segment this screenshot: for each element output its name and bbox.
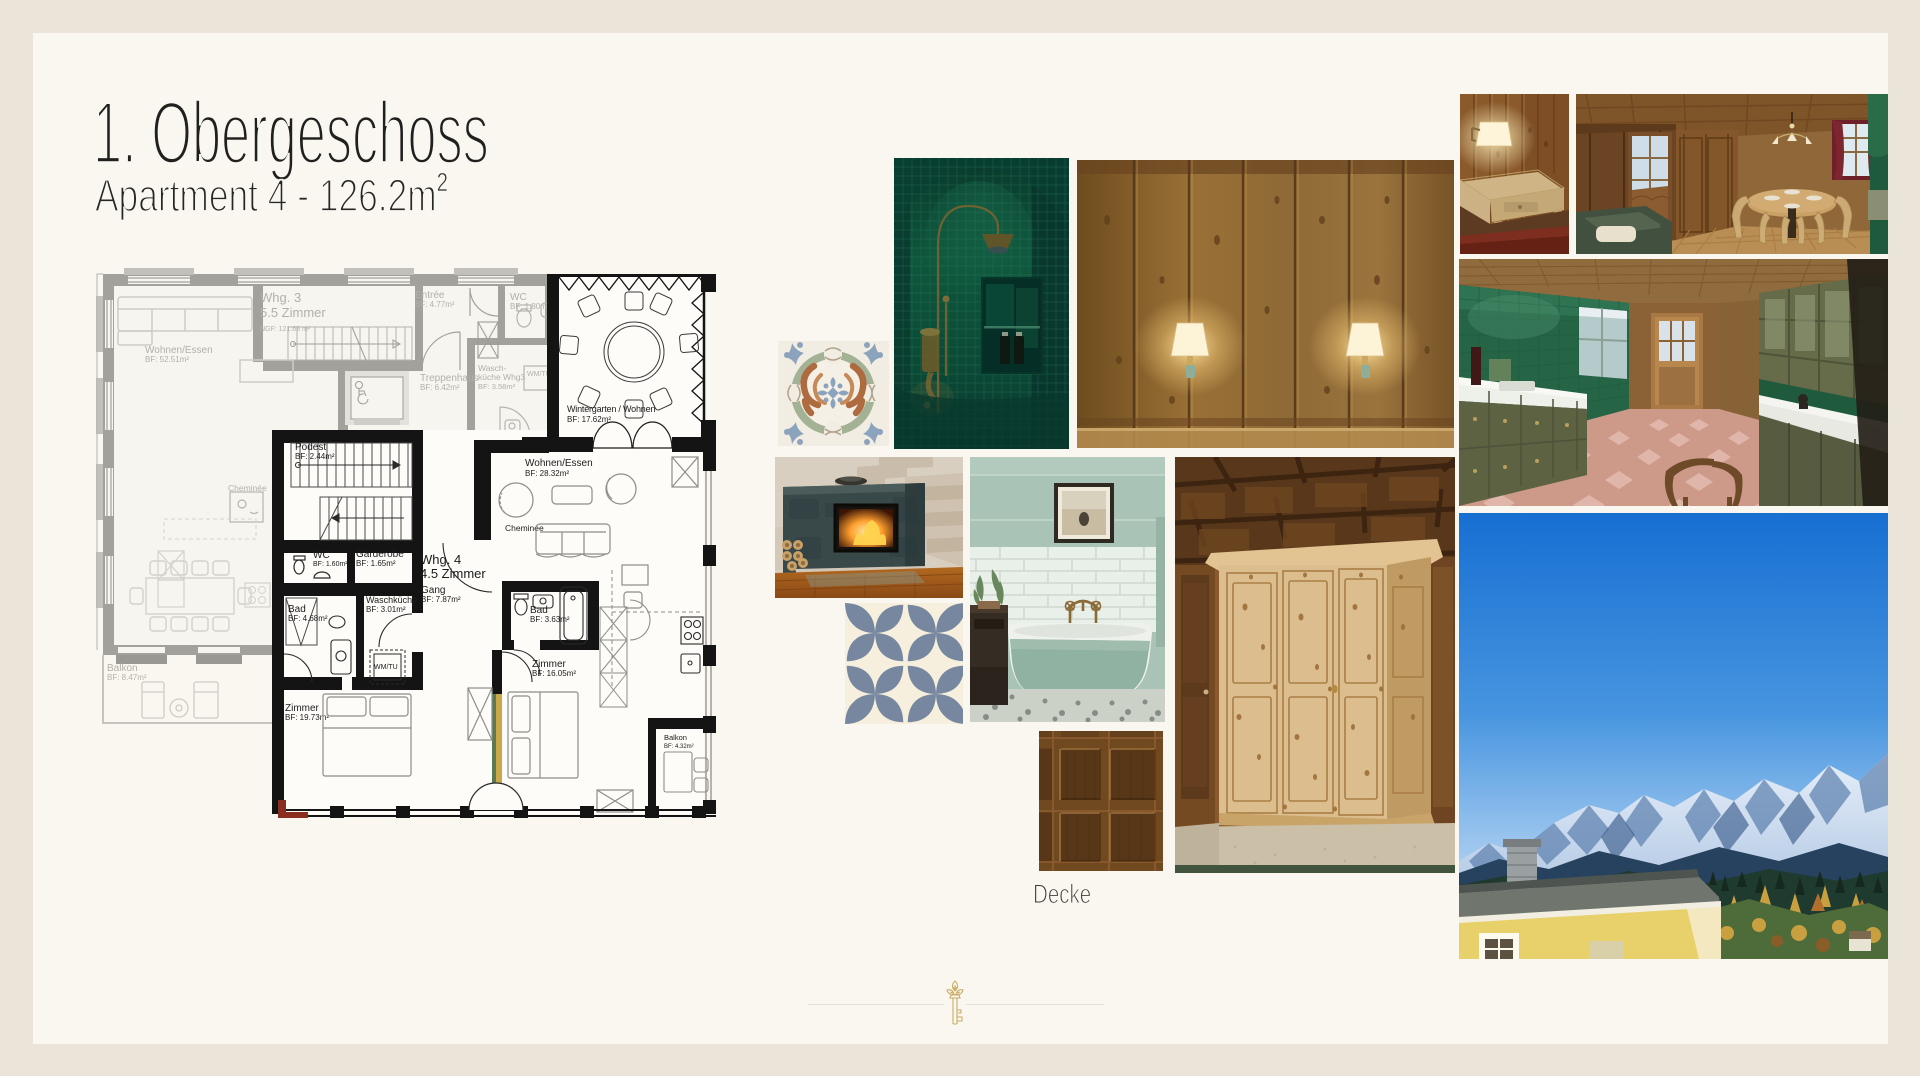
svg-text:BF: 7.87m²: BF: 7.87m² <box>421 595 461 604</box>
svg-text:BF: 3.58m²: BF: 3.58m² <box>478 382 516 391</box>
svg-text:BF: 1.60m²: BF: 1.60m² <box>313 561 348 568</box>
svg-text:Whg. 3: Whg. 3 <box>260 290 301 305</box>
svg-text:BF: 8.47m²: BF: 8.47m² <box>107 673 147 682</box>
svg-text:Whg. 4: Whg. 4 <box>420 552 461 567</box>
svg-text:Wintergarten / Wohnen: Wintergarten / Wohnen <box>567 404 655 414</box>
svg-text:Waschküche: Waschküche <box>366 595 417 605</box>
svg-text:WC: WC <box>313 550 330 561</box>
svg-text:Balkon: Balkon <box>664 733 687 742</box>
svg-text:BF: 1.65m²: BF: 1.65m² <box>356 559 396 568</box>
svg-text:BF: 1.80m²: BF: 1.80m² <box>510 302 550 311</box>
svg-text:NGF: 121.68 m²: NGF: 121.68 m² <box>260 326 311 333</box>
svg-text:WM/TU: WM/TU <box>374 664 398 671</box>
svg-text:BF: 17.62m²: BF: 17.62m² <box>567 415 611 424</box>
svg-text:BF: 2.44m²: BF: 2.44m² <box>295 452 335 461</box>
svg-text:4.5 Zimmer: 4.5 Zimmer <box>420 566 486 581</box>
svg-text:BF: 4.68m²: BF: 4.68m² <box>288 614 328 623</box>
svg-text:küche Whg3: küche Whg3 <box>478 372 526 382</box>
svg-text:5.5 Zimmer: 5.5 Zimmer <box>260 305 326 320</box>
svg-text:BF: 52.51m²: BF: 52.51m² <box>145 355 189 364</box>
svg-text:BF: 3.01m²: BF: 3.01m² <box>366 605 406 614</box>
svg-text:BF: 28.32m²: BF: 28.32m² <box>525 469 569 478</box>
svg-text:BF: 4.32m²: BF: 4.32m² <box>664 744 694 750</box>
svg-text:Wohnen/Essen: Wohnen/Essen <box>525 458 593 469</box>
svg-text:BF: 3.63m²: BF: 3.63m² <box>530 615 570 624</box>
svg-text:BF: 16.05m²: BF: 16.05m² <box>532 669 576 678</box>
svg-text:Cheminée: Cheminée <box>228 483 267 493</box>
svg-text:BF: 6.42m²: BF: 6.42m² <box>420 383 460 392</box>
svg-text:BF: 4.77m²: BF: 4.77m² <box>415 300 455 309</box>
